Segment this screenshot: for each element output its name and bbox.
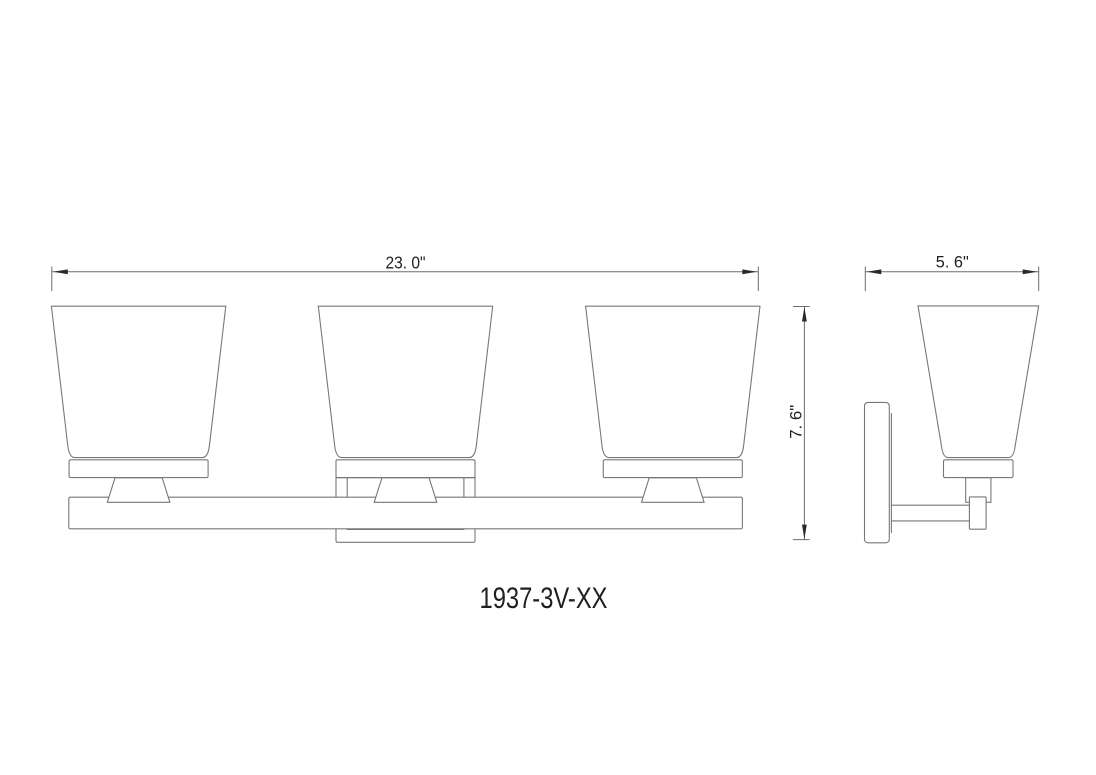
svg-text:7. 6": 7. 6" xyxy=(786,405,805,439)
svg-text:1937-3V-XX: 1937-3V-XX xyxy=(480,582,608,615)
svg-text:5. 6": 5. 6" xyxy=(936,253,969,272)
svg-text:23. 0": 23. 0" xyxy=(386,252,426,272)
